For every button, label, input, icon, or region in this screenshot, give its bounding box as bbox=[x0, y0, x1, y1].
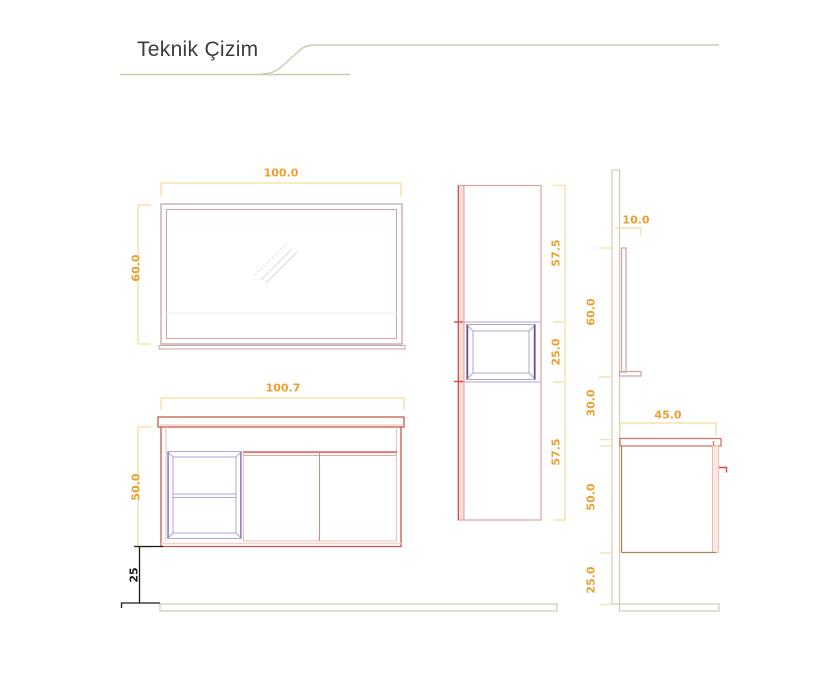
vanity-open-shelf bbox=[168, 452, 242, 539]
mirror-height-dimension: 60.0 bbox=[130, 254, 143, 281]
side-view bbox=[612, 170, 727, 611]
plinth-height-dimension: 25 bbox=[128, 567, 141, 582]
front-floor-line bbox=[160, 604, 557, 611]
side-mirror-height-dimension: 60.0 bbox=[585, 298, 598, 325]
technical-drawing-page: Teknik Çizim bbox=[0, 0, 830, 690]
mirror-front-view bbox=[159, 204, 405, 349]
vanity-height-dimension: 50.0 bbox=[130, 473, 143, 500]
vanity-doors bbox=[243, 452, 397, 541]
side-cabinet-profile bbox=[622, 446, 719, 553]
vanity-width-dimension-line bbox=[161, 398, 404, 410]
mirror-width-dimension-line bbox=[161, 183, 401, 196]
vanity-width-dimension: 100.7 bbox=[266, 382, 301, 395]
side-plinth-dimension: 25.0 bbox=[585, 566, 598, 593]
side-mirror-profile bbox=[620, 248, 642, 376]
side-wall-line bbox=[612, 170, 620, 604]
tall-cabinet-front-view bbox=[454, 186, 541, 521]
side-door-handle bbox=[719, 468, 727, 473]
mirror-width-dimension: 100.0 bbox=[264, 167, 299, 180]
tall-cabinet-bottom-dimension: 57.5 bbox=[550, 438, 563, 465]
side-wall-gap-dimension: 30.0 bbox=[585, 389, 598, 416]
side-shelf-depth-dimension: 10.0 bbox=[622, 214, 649, 227]
tall-cabinet-middle-dimension: 25.0 bbox=[550, 338, 563, 365]
technical-drawing-canvas bbox=[0, 0, 830, 690]
vanity-front-view bbox=[158, 417, 404, 547]
tall-cabinet-niche bbox=[467, 325, 536, 380]
side-counter-profile bbox=[620, 439, 721, 447]
mirror-reflection-marks bbox=[255, 243, 297, 283]
side-cabinet-height-dimension: 50.0 bbox=[585, 483, 598, 510]
side-counter-depth-dimension: 45.0 bbox=[654, 409, 681, 422]
side-floor-line bbox=[620, 604, 720, 611]
tall-cabinet-top-dimension: 57.5 bbox=[550, 239, 563, 266]
header-divider-line bbox=[120, 45, 719, 75]
